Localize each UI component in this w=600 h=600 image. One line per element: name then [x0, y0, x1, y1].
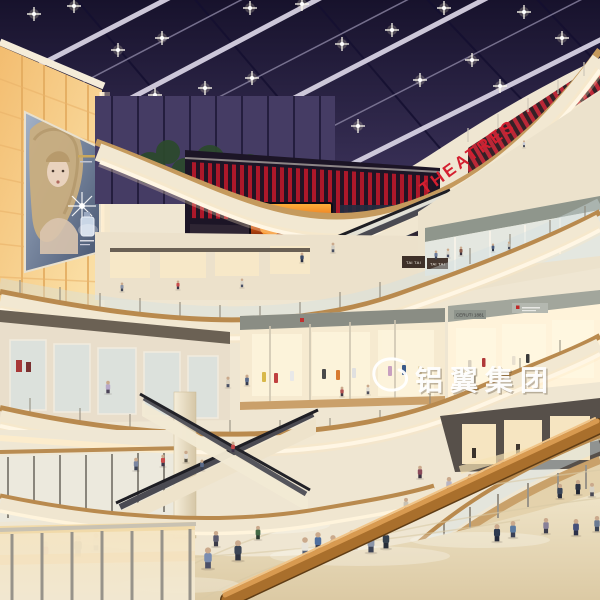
svg-text:CERUTI 1881: CERUTI 1881	[456, 313, 485, 318]
billboard-brand-mark	[78, 155, 95, 158]
person	[416, 466, 424, 480]
watermark-text: 铝翼集团	[415, 365, 555, 396]
mall-atrium-render: THEATRES	[0, 0, 600, 600]
glass-balustrade-foreground	[0, 522, 196, 600]
center-store-glow	[252, 330, 434, 396]
red-logo-sign	[512, 303, 548, 313]
ceruti-sign: CERUTI 1881	[454, 310, 486, 319]
svg-text:TAI TAI: TAI TAI	[406, 260, 421, 265]
render-canvas: THEATRES	[0, 0, 600, 600]
store-logo-dot	[300, 318, 304, 322]
tai-tai-sign-left: TAI TAI	[402, 256, 425, 268]
